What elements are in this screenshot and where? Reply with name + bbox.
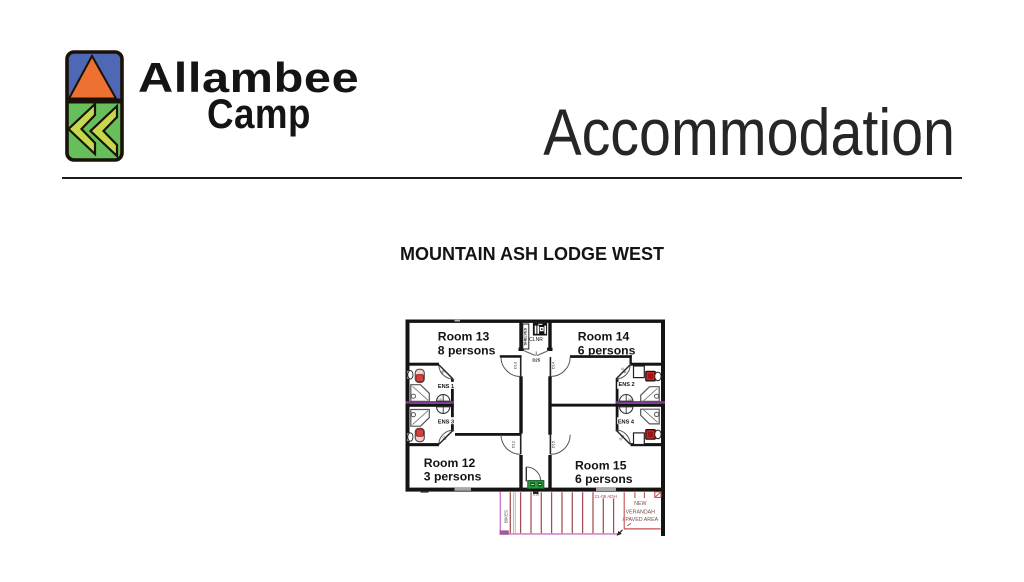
svg-text:D14: D14 [551, 362, 555, 369]
svg-text:6 persons: 6 persons [575, 472, 633, 486]
svg-text:Room 12: Room 12 [424, 456, 476, 470]
svg-text:NEW: NEW [634, 501, 646, 507]
svg-text:D13: D13 [514, 362, 518, 369]
svg-text:ENS 2: ENS 2 [619, 382, 635, 388]
svg-text:21-08 ADH: 21-08 ADH [594, 494, 616, 499]
svg-text:Room 15: Room 15 [575, 459, 627, 473]
svg-text:D17: D17 [618, 434, 625, 441]
svg-text:D12: D12 [512, 441, 516, 448]
svg-text:BIKES: BIKES [503, 510, 508, 523]
svg-text:Room 14: Room 14 [578, 329, 630, 343]
svg-text:VERANDAH: VERANDAH [626, 509, 656, 515]
svg-text:Room 13: Room 13 [438, 330, 490, 344]
svg-text:8 persons: 8 persons [438, 343, 496, 357]
svg-text:D16: D16 [533, 492, 539, 496]
svg-text:SHELVES: SHELVES [524, 327, 528, 345]
svg-text:3 persons: 3 persons [424, 469, 482, 483]
svg-text:D25: D25 [532, 358, 540, 363]
svg-text:DB: DB [628, 398, 632, 402]
svg-text:ENS 4: ENS 4 [618, 420, 635, 426]
svg-text:DB 8: DB 8 [438, 398, 445, 402]
svg-text:ENS 3: ENS 3 [438, 420, 454, 426]
svg-text:/ PAVED AREA: / PAVED AREA [622, 517, 658, 523]
svg-text:D15: D15 [551, 441, 555, 448]
svg-text:ENS 1: ENS 1 [438, 384, 454, 390]
svg-text:CLNR: CLNR [529, 337, 543, 343]
